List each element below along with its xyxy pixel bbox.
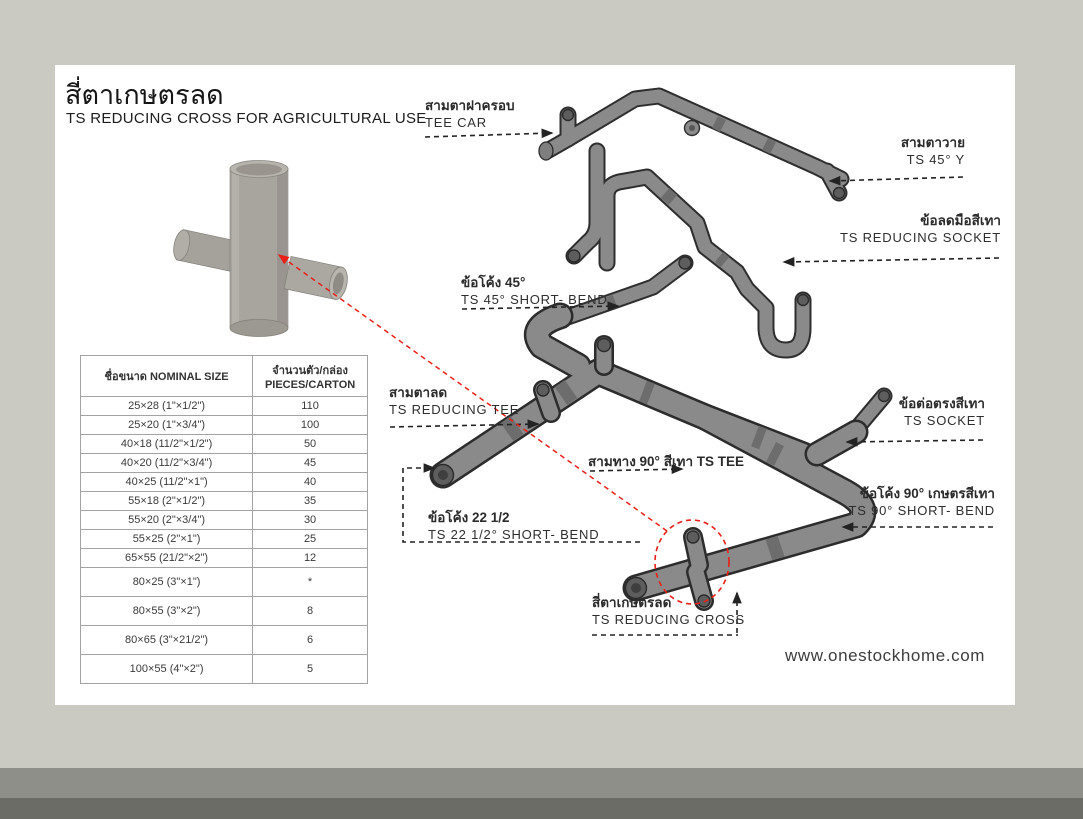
arrow-socket <box>847 440 983 442</box>
size-table: ชื่อขนาด NOMINAL SIZE จำนวนตัว/กล่อง PIE… <box>80 355 368 684</box>
table-row: 55×20 (2"×3/4")30 <box>81 511 368 530</box>
table-row: 80×25 (3"×1")* <box>81 568 368 597</box>
label-bend225: ข้อโค้ง 22 1/2 TS 22 1/2° SHORT- BEND <box>428 509 599 543</box>
pieces-cell: 35 <box>253 492 368 511</box>
pieces-carton-header: จำนวนตัว/กล่อง PIECES/CARTON <box>253 356 368 397</box>
table-row: 40×20 (11/2"×3/4")45 <box>81 454 368 473</box>
nominal-size-header: ชื่อขนาด NOMINAL SIZE <box>81 356 253 397</box>
pieces-cell: 45 <box>253 454 368 473</box>
bottom-band-dark <box>0 798 1083 819</box>
arrow-tee-cap <box>425 133 552 137</box>
arrow-reducing-socket <box>784 258 999 262</box>
size-cell: 25×20 (1"×3/4") <box>81 416 253 435</box>
table-row: 25×20 (1"×3/4")100 <box>81 416 368 435</box>
pieces-cell: 25 <box>253 530 368 549</box>
pieces-cell: 100 <box>253 416 368 435</box>
page-title-english: TS REDUCING CROSS FOR AGRICULTURAL USE <box>66 110 427 127</box>
reducing-cross-photo <box>171 161 350 337</box>
content-card: สี่ตาเกษตรลด TS REDUCING CROSS FOR AGRIC… <box>55 65 1015 705</box>
pieces-cell: 30 <box>253 511 368 530</box>
pieces-cell: 12 <box>253 549 368 568</box>
table-header-row: ชื่อขนาด NOMINAL SIZE จำนวนตัว/กล่อง PIE… <box>81 356 368 397</box>
website-text: www.onestockhome.com <box>785 646 985 666</box>
product-sheet-page: สี่ตาเกษตรลด TS REDUCING CROSS FOR AGRIC… <box>0 0 1083 819</box>
pieces-cell: 8 <box>253 597 368 626</box>
label-socket: ข้อต่อตรงสีเทา TS SOCKET <box>899 395 985 429</box>
table-row: 80×55 (3"×2")8 <box>81 597 368 626</box>
arrow-reducing-tee <box>390 424 538 427</box>
table-row: 55×25 (2"×1")25 <box>81 530 368 549</box>
size-cell: 40×25 (11/2"×1") <box>81 473 253 492</box>
table-row: 55×18 (2"×1/2")35 <box>81 492 368 511</box>
size-cell: 80×65 (3"×21/2") <box>81 626 253 655</box>
size-cell: 80×55 (3"×2") <box>81 597 253 626</box>
table-row: 40×18 (11/2"×1/2")50 <box>81 435 368 454</box>
pieces-cell: 40 <box>253 473 368 492</box>
table-row: 100×55 (4"×2")5 <box>81 655 368 684</box>
size-cell: 40×18 (11/2"×1/2") <box>81 435 253 454</box>
size-cell: 55×20 (2"×3/4") <box>81 511 253 530</box>
size-table-body: 25×28 (1"×1/2")11025×20 (1"×3/4")10040×1… <box>81 397 368 684</box>
table-row: 40×25 (11/2"×1")40 <box>81 473 368 492</box>
pieces-cell: 50 <box>253 435 368 454</box>
label-ts-tee: สามทาง 90° สีเทา TS TEE <box>588 450 744 472</box>
size-cell: 55×18 (2"×1/2") <box>81 492 253 511</box>
table-row: 80×65 (3"×21/2")6 <box>81 626 368 655</box>
label-reducing-socket: ข้อลดมือสีเทา TS REDUCING SOCKET <box>840 212 1001 246</box>
pieces-cell: 110 <box>253 397 368 416</box>
pieces-cell: * <box>253 568 368 597</box>
size-cell: 55×25 (2"×1") <box>81 530 253 549</box>
label-bend90: ข้อโค้ง 90° เกษตรสีเทา TS 90° SHORT- BEN… <box>848 485 995 519</box>
pieces-cell: 5 <box>253 655 368 684</box>
size-cell: 100×55 (4"×2") <box>81 655 253 684</box>
table-row: 65×55 (21/2"×2")12 <box>81 549 368 568</box>
bottom-band-light <box>0 768 1083 798</box>
size-cell: 40×20 (11/2"×3/4") <box>81 454 253 473</box>
size-cell: 65×55 (21/2"×2") <box>81 549 253 568</box>
label-reducing-tee: สามตาลด TS REDUCING TEE <box>389 384 519 418</box>
label-tee-cap: สามตาฝาครอบ TEE CAR <box>425 97 515 131</box>
table-row: 25×28 (1"×1/2")110 <box>81 397 368 416</box>
label-ts45y: สามตาวาย TS 45° Y <box>901 134 965 168</box>
size-cell: 25×28 (1"×1/2") <box>81 397 253 416</box>
arrow-ts45y <box>830 177 963 181</box>
label-reducing-cross: สี่ตาเกษตรลด TS REDUCING CROSS <box>592 594 745 628</box>
pieces-cell: 6 <box>253 626 368 655</box>
size-cell: 80×25 (3"×1") <box>81 568 253 597</box>
label-bend45: ข้อโค้ง 45° TS 45° SHORT- BEND <box>461 274 608 308</box>
highlight-circle <box>655 520 729 604</box>
